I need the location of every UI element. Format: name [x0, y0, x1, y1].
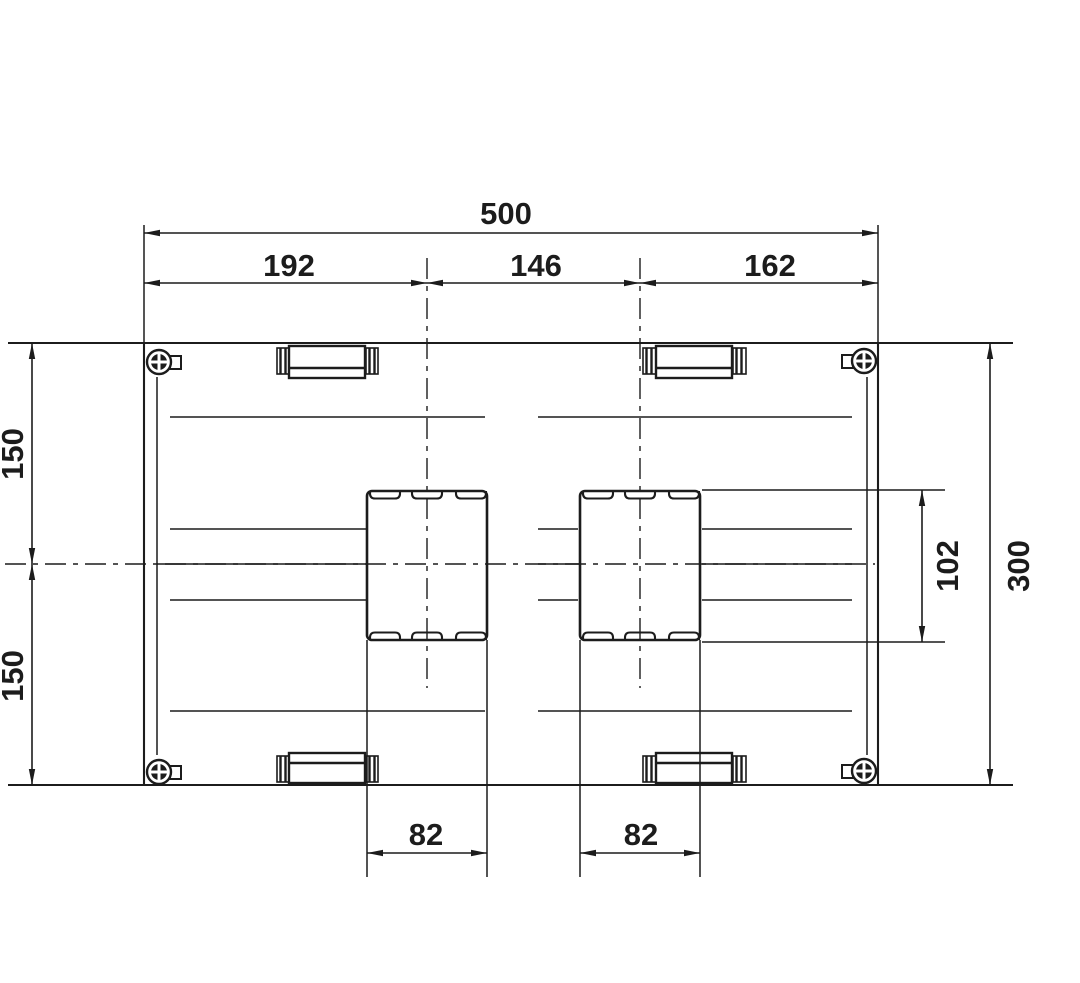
dim-label-left-span: 192: [263, 248, 315, 283]
extension-lines: [144, 225, 945, 877]
screw-bottom-right: [842, 759, 876, 783]
clamp-bottom-right: [643, 753, 746, 783]
dim-label-overall-width: 500: [480, 196, 532, 231]
dim-label-carriage-height: 102: [930, 540, 965, 592]
dimension-labels: 500 192 146 162 150 150 102 300 82 82: [0, 196, 1036, 852]
dim-label-left-carriage-width: 82: [409, 817, 443, 852]
technical-drawing: 500 192 146 162 150 150 102 300 82 82: [0, 0, 1080, 983]
clamp-top-right: [643, 346, 746, 378]
dim-label-lower-half-height: 150: [0, 650, 30, 702]
dim-label-right-span: 162: [744, 248, 796, 283]
dim-label-right-carriage-width: 82: [624, 817, 658, 852]
dim-label-center-span: 146: [510, 248, 562, 283]
dim-label-upper-half-height: 150: [0, 428, 30, 480]
clamp-bottom-left: [277, 753, 378, 783]
technical-drawing-canvas: 500 192 146 162 150 150 102 300 82 82: [0, 0, 1080, 983]
center-lines: [5, 258, 875, 688]
screw-top-left: [147, 350, 181, 374]
screw-bottom-left: [147, 760, 181, 784]
screw-top-right: [842, 349, 876, 373]
dimension-lines: [32, 233, 990, 853]
clamp-top-left: [277, 346, 378, 378]
dim-label-overall-height: 300: [1001, 540, 1036, 592]
